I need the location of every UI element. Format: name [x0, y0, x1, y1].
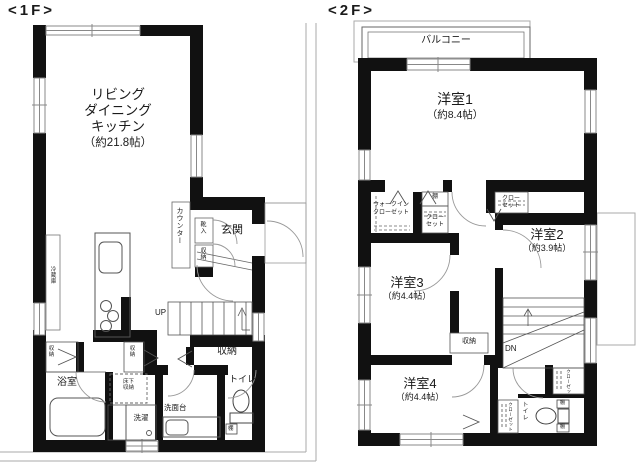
f1-closet-a-label: 収納 [47, 345, 53, 357]
f1-shelf-label: 棚 [228, 426, 234, 432]
f2-room1-label: 洋室1 [437, 92, 473, 107]
f2-shelf-a-label: 棚 [560, 401, 565, 407]
f1-ldk-label-3: キッチン [91, 120, 145, 135]
f2-room2-size: （約3.9帖） [523, 244, 572, 254]
f2-shelf-top-label: 棚 [432, 194, 438, 201]
f1-ldk-size: （約21.8帖） [84, 137, 152, 150]
f1-porch [265, 203, 306, 263]
f1-laundry-label: 洗濯 [134, 414, 149, 422]
f1-shoe-storage-label: 収納 [199, 247, 205, 260]
f1-refrigerator-label: 冷蔵庫 [49, 266, 55, 284]
f2-wic-label-2: クローゼット [373, 210, 409, 217]
f2-stairs-dn-label: DN [505, 345, 517, 354]
f1-closet-b-label: 収納 [128, 345, 134, 357]
f1-entrance-label: 玄関 [221, 224, 243, 236]
f2-room3-size: （約4.4帖） [383, 292, 432, 302]
f1-stairs-up-label: UP [155, 309, 166, 318]
f1-ldk-label-1: リビング [91, 88, 145, 103]
f1-windows [32, 24, 264, 453]
f2-closet-a-label-1: クロー [426, 215, 444, 222]
f1-stairs [168, 302, 252, 335]
f1-laundry-pan [108, 405, 156, 440]
f1-shoebox-label: 靴入 [199, 221, 205, 234]
f1-vanity-sink [163, 417, 220, 437]
f2-room4-size: （約4.4帖） [396, 393, 445, 403]
f2-closet-a-label-2: セット [426, 222, 444, 229]
f2-closet-d-label: クローゼット [566, 369, 571, 399]
floorplan-canvas: <1F> リビング ダイニング キッチン （約21.8帖） カウンター 靴入 収… [0, 0, 640, 467]
f2-room1-size: （約8.4帖） [427, 110, 484, 122]
f1-title: <1F> [8, 3, 55, 20]
f1-toilet-label: トイレ [229, 375, 256, 385]
f1-hall-storage-label: 収納 [217, 346, 237, 357]
f2-storage-label: 収納 [462, 338, 476, 346]
f2-title: <2F> [328, 3, 375, 20]
f2-balcony-label: バルコニー [421, 35, 471, 46]
f1-vanity-label: 洗面台 [164, 404, 187, 412]
f2-room3-label: 洋室3 [390, 276, 423, 290]
f2-room2-label: 洋室2 [530, 228, 563, 242]
f2-closet-b-label-2: セット [502, 203, 520, 210]
f2-closet-c-label: クローゼット [508, 402, 513, 432]
f1-bath-label: 浴室 [57, 377, 77, 388]
f2-shelf-b-label: 棚 [560, 425, 565, 431]
f1-ldk-label-2: ダイニング [84, 104, 152, 119]
f2-wic-label-1: ウォークイン [373, 202, 409, 209]
f1-counter-label: カウンター [176, 207, 183, 245]
f2-closet-b-label-1: クロー [502, 196, 520, 203]
f2-room4-label: 洋室4 [403, 377, 436, 391]
f2-toilet-label: トイレ [521, 401, 527, 421]
f1-underfloor-storage-label: 床下収納 [122, 379, 135, 391]
f2-stairs [503, 298, 584, 368]
